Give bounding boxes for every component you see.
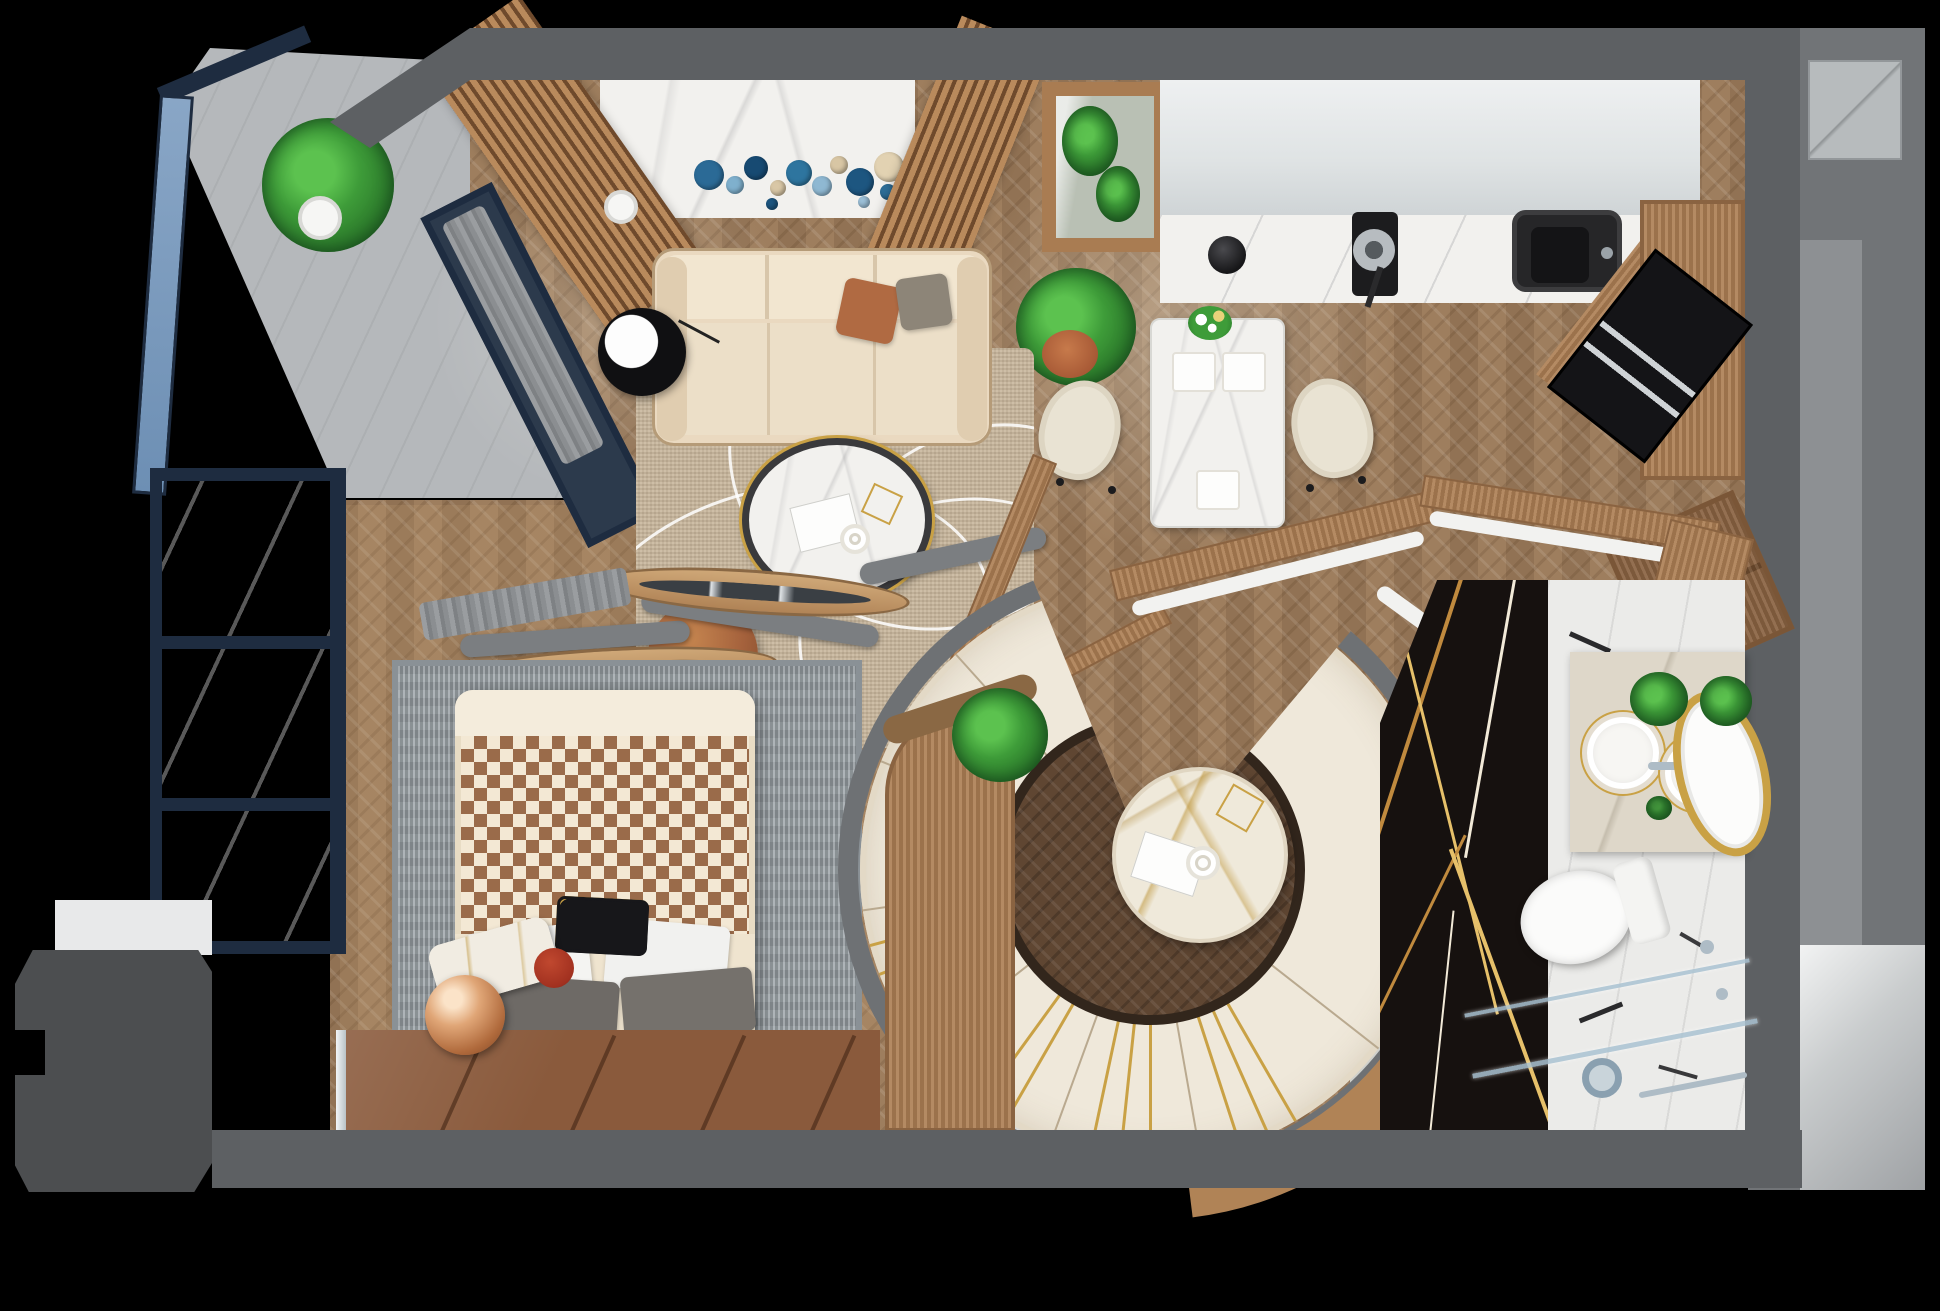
bed-sheet-fold (455, 690, 755, 738)
marble-veins-i (1380, 835, 1467, 1106)
chair-leg (1056, 478, 1064, 486)
vanity-plant-left (1630, 672, 1688, 726)
sink-basin (1531, 227, 1589, 283)
balcony-plant-pot (298, 196, 342, 240)
frying-pan (1353, 229, 1395, 271)
facade-window-panel (1808, 60, 1902, 160)
bottom-wall (212, 1130, 1802, 1188)
facade-ledge (1800, 240, 1862, 945)
black-accent-pillow (555, 896, 650, 957)
dining-table (1150, 318, 1285, 528)
copper-sphere-lamp (425, 975, 505, 1055)
window-frame-bars-i (162, 798, 330, 811)
faucet (1601, 247, 1613, 259)
vanity-plant-right (1700, 676, 1752, 726)
mirror-plant (1062, 106, 1118, 176)
place-settings-i (1196, 470, 1240, 510)
balcony-railing-glass (132, 94, 194, 495)
chair-leg (1306, 484, 1314, 492)
marble-veins (1380, 580, 1548, 1130)
window-frame-bars (162, 468, 330, 954)
black-floor-lamp (598, 308, 686, 396)
window-sill-block (55, 900, 212, 955)
kitchen-sink (1512, 210, 1622, 292)
white-vase (604, 190, 638, 224)
floor-plan-canvas (0, 0, 1940, 1311)
leather-seams (336, 1030, 880, 1132)
black-gold-marble-wall (1380, 580, 1548, 1130)
shower-drain (1582, 1058, 1622, 1098)
kettle (1208, 236, 1246, 274)
facade-bottom-light (1800, 945, 1925, 1190)
chair-leg (1108, 486, 1116, 494)
place-settings-i (1222, 352, 1266, 392)
coffee-cup (840, 524, 870, 554)
platform-chrome-edge (336, 1030, 346, 1132)
leather-platform (336, 1030, 880, 1132)
marble-veins-i (1404, 645, 1499, 1014)
place-settings-i (1172, 352, 1216, 392)
console-plant (952, 688, 1048, 782)
framed-mirror-with-plants (1042, 82, 1168, 252)
wall-notch (15, 1030, 45, 1075)
window-frame-bars-i (162, 468, 330, 481)
sofa-arm-right (957, 257, 987, 441)
rust-pillow (835, 277, 904, 346)
gray-pillow (895, 273, 954, 332)
bedroom-window (150, 468, 346, 954)
vanity-moss-ball (1646, 796, 1672, 820)
chair-leg (1358, 476, 1366, 484)
table-flowers (1188, 306, 1232, 340)
marble-veins-i (1464, 580, 1519, 858)
floor-streaks-i (1658, 1065, 1698, 1080)
marble-veins-i (1427, 911, 1454, 1130)
shower-knob-2 (1716, 988, 1728, 1000)
mirror-plant-2 (1096, 166, 1140, 222)
red-cylinder-top (534, 948, 574, 988)
place-settings (1152, 320, 1283, 526)
floor-streaks-i (1579, 1002, 1624, 1024)
kitchen-plant-pot (1042, 330, 1098, 378)
shower-knob (1700, 940, 1714, 954)
window-frame-bars-i (162, 636, 330, 649)
kitchen-upper-cabinets (1160, 80, 1700, 215)
floor-streaks-i (1569, 631, 1611, 653)
